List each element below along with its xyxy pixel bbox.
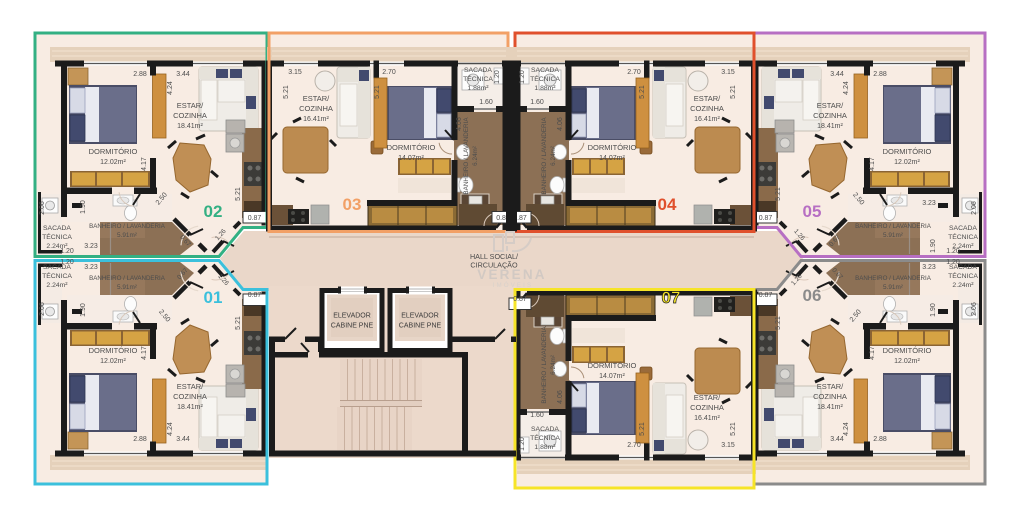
svg-text:6.24m²: 6.24m² bbox=[550, 146, 557, 166]
svg-text:CIRCULAÇÃO: CIRCULAÇÃO bbox=[470, 261, 518, 270]
svg-text:5.91m²: 5.91m² bbox=[883, 284, 903, 291]
svg-text:1.88m²: 1.88m² bbox=[467, 85, 489, 92]
svg-text:5.21: 5.21 bbox=[235, 316, 242, 330]
svg-text:2.06: 2.06 bbox=[971, 302, 978, 316]
svg-text:5.91m²: 5.91m² bbox=[117, 232, 137, 239]
svg-text:COZINHA: COZINHA bbox=[690, 104, 724, 113]
svg-text:16.41m²: 16.41m² bbox=[694, 116, 720, 123]
svg-text:1.20: 1.20 bbox=[946, 259, 960, 266]
svg-text:IMÓVEIS: IMÓVEIS bbox=[493, 282, 533, 289]
svg-text:12.02m²: 12.02m² bbox=[100, 358, 126, 365]
svg-text:COZINHA: COZINHA bbox=[173, 392, 207, 401]
svg-text:2.70: 2.70 bbox=[382, 69, 396, 76]
svg-text:5.21: 5.21 bbox=[283, 85, 290, 99]
svg-text:0.87: 0.87 bbox=[248, 215, 262, 222]
svg-text:TÉCNICA: TÉCNICA bbox=[42, 271, 72, 280]
svg-text:2.70: 2.70 bbox=[627, 69, 641, 76]
svg-text:0.87: 0.87 bbox=[759, 215, 773, 222]
svg-text:2.24m²: 2.24m² bbox=[46, 282, 68, 289]
svg-text:COZINHA: COZINHA bbox=[690, 403, 724, 412]
svg-text:3.44: 3.44 bbox=[176, 71, 190, 78]
svg-text:2.88: 2.88 bbox=[133, 71, 147, 78]
svg-text:18.41m²: 18.41m² bbox=[817, 404, 843, 411]
svg-text:ESTAR/: ESTAR/ bbox=[303, 94, 330, 103]
svg-text:12.02m²: 12.02m² bbox=[894, 159, 920, 166]
svg-text:SACADA: SACADA bbox=[531, 426, 559, 433]
svg-text:BANHEIRO / LAVANDERIA: BANHEIRO / LAVANDERIA bbox=[855, 275, 932, 282]
svg-text:1.60: 1.60 bbox=[479, 99, 493, 106]
svg-text:1.88m²: 1.88m² bbox=[534, 444, 556, 451]
svg-text:DORMITÓRIO: DORMITÓRIO bbox=[387, 143, 436, 152]
svg-text:TÉCNICA: TÉCNICA bbox=[530, 433, 560, 442]
svg-text:4.17: 4.17 bbox=[141, 157, 148, 171]
svg-text:3.23: 3.23 bbox=[84, 243, 98, 250]
svg-text:5.21: 5.21 bbox=[639, 85, 646, 99]
svg-text:ESTAR/: ESTAR/ bbox=[817, 382, 844, 391]
svg-text:1.20: 1.20 bbox=[60, 248, 74, 255]
svg-text:18.41m²: 18.41m² bbox=[817, 123, 843, 130]
svg-text:3.23: 3.23 bbox=[922, 200, 936, 207]
svg-text:4.17: 4.17 bbox=[869, 346, 876, 360]
svg-text:SACADA: SACADA bbox=[43, 225, 71, 232]
svg-text:5.21: 5.21 bbox=[374, 85, 381, 99]
svg-text:DORMITÓRIO: DORMITÓRIO bbox=[89, 346, 138, 355]
svg-text:4.17: 4.17 bbox=[141, 346, 148, 360]
svg-text:14.07m²: 14.07m² bbox=[599, 155, 625, 162]
svg-text:1.90: 1.90 bbox=[930, 239, 937, 253]
svg-text:14.07m²: 14.07m² bbox=[398, 155, 424, 162]
svg-text:16.41m²: 16.41m² bbox=[694, 415, 720, 422]
svg-text:0.87: 0.87 bbox=[248, 292, 262, 299]
svg-text:3.15: 3.15 bbox=[721, 442, 735, 449]
svg-text:5.21: 5.21 bbox=[639, 422, 646, 436]
svg-text:ESTAR/: ESTAR/ bbox=[694, 94, 721, 103]
svg-text:DORMITÓRIO: DORMITÓRIO bbox=[588, 143, 637, 152]
svg-text:ESTAR/: ESTAR/ bbox=[177, 382, 204, 391]
svg-text:6.24m²: 6.24m² bbox=[550, 355, 557, 375]
svg-text:5.21: 5.21 bbox=[730, 85, 737, 99]
svg-text:3.44: 3.44 bbox=[830, 71, 844, 78]
svg-text:ELEVADOR: ELEVADOR bbox=[401, 313, 439, 320]
svg-text:4.24: 4.24 bbox=[843, 422, 850, 436]
svg-text:1.60: 1.60 bbox=[530, 412, 544, 419]
svg-text:0.87: 0.87 bbox=[759, 292, 773, 299]
svg-text:5.21: 5.21 bbox=[235, 187, 242, 201]
svg-text:1.20: 1.20 bbox=[519, 437, 526, 451]
svg-text:2.24m²: 2.24m² bbox=[952, 282, 974, 289]
svg-text:2.88: 2.88 bbox=[873, 71, 887, 78]
svg-text:3.44: 3.44 bbox=[830, 436, 844, 443]
svg-text:DORMITÓRIO: DORMITÓRIO bbox=[89, 147, 138, 156]
svg-text:0.87: 0.87 bbox=[513, 296, 527, 303]
svg-text:2.06: 2.06 bbox=[971, 201, 978, 215]
svg-text:1.60: 1.60 bbox=[530, 99, 544, 106]
svg-text:SACADA: SACADA bbox=[949, 225, 977, 232]
svg-text:COZINHA: COZINHA bbox=[813, 111, 847, 120]
svg-text:DORMITÓRIO: DORMITÓRIO bbox=[588, 361, 637, 370]
svg-text:DORMITÓRIO: DORMITÓRIO bbox=[883, 147, 932, 156]
svg-text:3.15: 3.15 bbox=[721, 69, 735, 76]
svg-text:ELEVADOR: ELEVADOR bbox=[333, 313, 371, 320]
svg-text:1.90: 1.90 bbox=[80, 200, 87, 214]
svg-text:3.23: 3.23 bbox=[922, 264, 936, 271]
svg-text:07: 07 bbox=[662, 288, 681, 307]
svg-text:1.88m²: 1.88m² bbox=[534, 85, 556, 92]
svg-text:4.24: 4.24 bbox=[167, 422, 174, 436]
svg-text:4.17: 4.17 bbox=[869, 157, 876, 171]
svg-text:BANHEIRO / LAVANDERIA: BANHEIRO / LAVANDERIA bbox=[89, 275, 166, 282]
svg-text:1.20: 1.20 bbox=[946, 248, 960, 255]
svg-text:02: 02 bbox=[204, 202, 223, 221]
svg-text:2.88: 2.88 bbox=[873, 436, 887, 443]
svg-text:18.41m²: 18.41m² bbox=[177, 123, 203, 130]
svg-text:4.06: 4.06 bbox=[456, 117, 463, 131]
svg-text:TÉCNICA: TÉCNICA bbox=[530, 74, 560, 83]
svg-text:5.21: 5.21 bbox=[775, 316, 782, 330]
svg-text:TÉCNICA: TÉCNICA bbox=[948, 232, 978, 241]
svg-text:BANHEIRO / LAVANDERIA: BANHEIRO / LAVANDERIA bbox=[463, 117, 470, 195]
svg-text:18.41m²: 18.41m² bbox=[177, 404, 203, 411]
svg-text:CABINE PNE: CABINE PNE bbox=[331, 323, 374, 330]
svg-text:14.07m²: 14.07m² bbox=[599, 373, 625, 380]
svg-text:4.24: 4.24 bbox=[167, 81, 174, 95]
svg-text:COZINHA: COZINHA bbox=[173, 111, 207, 120]
svg-text:2.88: 2.88 bbox=[133, 436, 147, 443]
svg-text:6.24m²: 6.24m² bbox=[472, 146, 479, 166]
svg-text:2.70: 2.70 bbox=[627, 442, 641, 449]
svg-text:SACADA: SACADA bbox=[531, 67, 559, 74]
svg-text:1.90: 1.90 bbox=[930, 303, 937, 317]
svg-text:BANHEIRO / LAVANDERIA: BANHEIRO / LAVANDERIA bbox=[541, 326, 548, 404]
svg-text:12.02m²: 12.02m² bbox=[894, 358, 920, 365]
svg-text:TÉCNICA: TÉCNICA bbox=[42, 232, 72, 241]
svg-text:2.06: 2.06 bbox=[39, 201, 46, 215]
svg-text:4.06: 4.06 bbox=[557, 390, 564, 404]
svg-text:03: 03 bbox=[343, 195, 362, 214]
svg-text:01: 01 bbox=[204, 288, 223, 307]
svg-text:5.21: 5.21 bbox=[730, 422, 737, 436]
svg-text:4.24: 4.24 bbox=[843, 81, 850, 95]
svg-text:BANHEIRO / LAVANDERIA: BANHEIRO / LAVANDERIA bbox=[541, 117, 548, 195]
svg-text:1.20: 1.20 bbox=[494, 70, 501, 84]
svg-text:1.90: 1.90 bbox=[80, 303, 87, 317]
svg-text:BANHEIRO / LAVANDERIA: BANHEIRO / LAVANDERIA bbox=[855, 223, 932, 230]
svg-text:1.20: 1.20 bbox=[60, 259, 74, 266]
svg-text:CABINE PNE: CABINE PNE bbox=[399, 323, 442, 330]
svg-text:TÉCNICA: TÉCNICA bbox=[463, 74, 493, 83]
svg-text:ESTAR/: ESTAR/ bbox=[694, 393, 721, 402]
svg-text:COZINHA: COZINHA bbox=[299, 104, 333, 113]
svg-text:ESTAR/: ESTAR/ bbox=[817, 101, 844, 110]
svg-text:1.20: 1.20 bbox=[519, 70, 526, 84]
svg-text:SACADA: SACADA bbox=[464, 67, 492, 74]
svg-text:5.91m²: 5.91m² bbox=[117, 284, 137, 291]
svg-text:5.21: 5.21 bbox=[775, 187, 782, 201]
svg-text:5.91m²: 5.91m² bbox=[883, 232, 903, 239]
svg-text:12.02m²: 12.02m² bbox=[100, 159, 126, 166]
svg-text:04: 04 bbox=[658, 195, 677, 214]
svg-text:2.06: 2.06 bbox=[39, 302, 46, 316]
svg-text:BANHEIRO / LAVANDERIA: BANHEIRO / LAVANDERIA bbox=[89, 223, 166, 230]
svg-text:3.15: 3.15 bbox=[288, 69, 302, 76]
svg-text:3.23: 3.23 bbox=[84, 264, 98, 271]
svg-text:05: 05 bbox=[803, 202, 822, 221]
svg-text:4.06: 4.06 bbox=[557, 117, 564, 131]
svg-text:DORMITÓRIO: DORMITÓRIO bbox=[883, 346, 932, 355]
svg-text:3.44: 3.44 bbox=[176, 436, 190, 443]
svg-text:TÉCNICA: TÉCNICA bbox=[948, 271, 978, 280]
svg-text:16.41m²: 16.41m² bbox=[303, 116, 329, 123]
svg-text:ESTAR/: ESTAR/ bbox=[177, 101, 204, 110]
svg-text:COZINHA: COZINHA bbox=[813, 392, 847, 401]
svg-text:06: 06 bbox=[803, 286, 822, 305]
